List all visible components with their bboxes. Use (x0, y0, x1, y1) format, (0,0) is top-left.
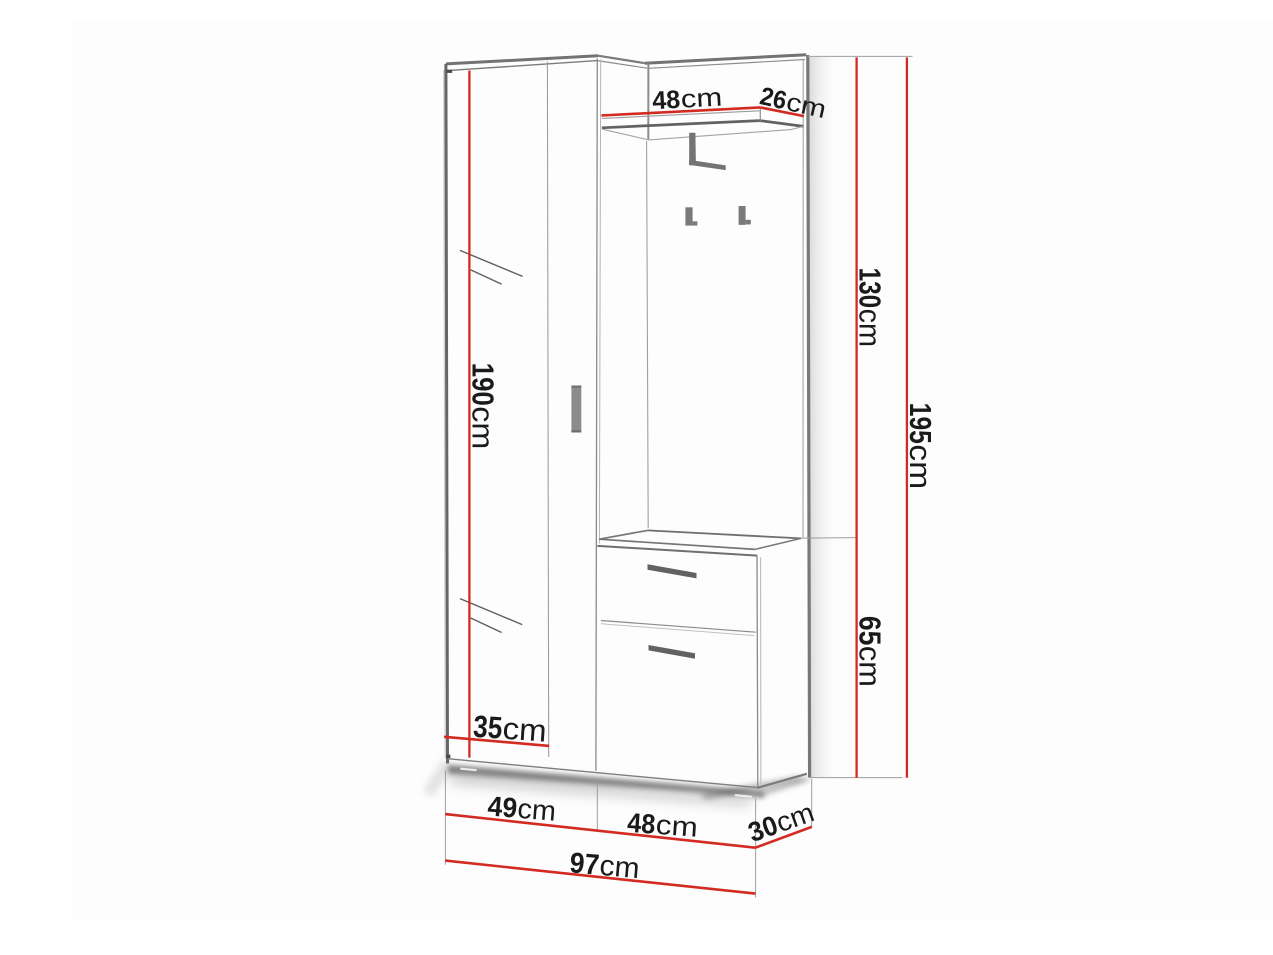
svg-text:cm: cm (655, 809, 699, 843)
svg-text:cm: cm (466, 406, 501, 449)
svg-text:130: 130 (852, 268, 887, 309)
svg-text:48: 48 (626, 807, 656, 840)
svg-text:cm: cm (516, 793, 557, 827)
svg-text:cm: cm (502, 711, 548, 749)
svg-text:48: 48 (652, 86, 681, 115)
svg-text:cm: cm (852, 646, 887, 687)
svg-text:190: 190 (466, 363, 501, 406)
svg-text:cm: cm (852, 309, 887, 348)
svg-text:97: 97 (568, 847, 600, 881)
svg-text:cm: cm (903, 444, 938, 489)
svg-text:cm: cm (598, 850, 641, 885)
svg-text:195: 195 (903, 403, 938, 444)
svg-text:49: 49 (487, 790, 519, 823)
svg-text:35: 35 (472, 709, 503, 746)
svg-text:cm: cm (680, 84, 723, 114)
svg-text:65: 65 (852, 616, 887, 646)
